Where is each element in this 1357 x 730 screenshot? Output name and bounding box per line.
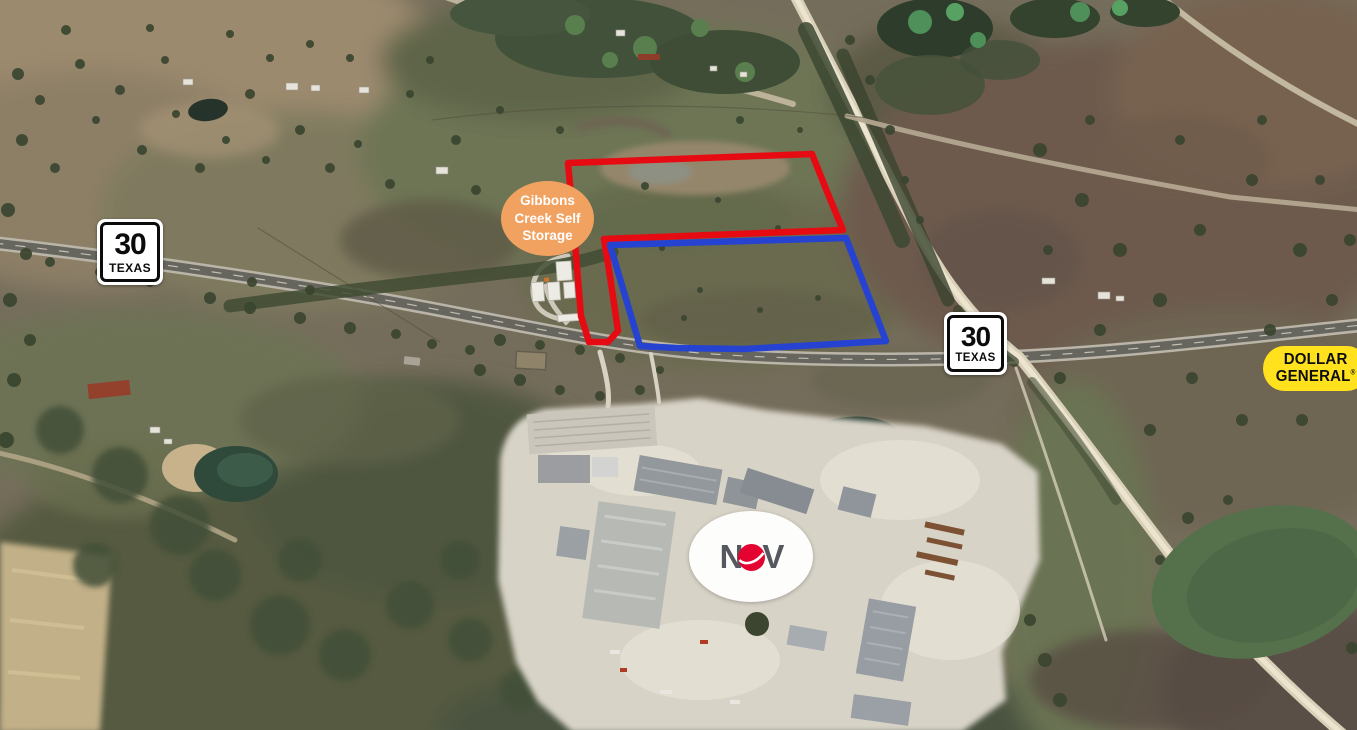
route-number: 30 xyxy=(961,323,990,351)
nov-letter-v: V xyxy=(762,540,782,573)
route-number: 30 xyxy=(114,230,145,260)
aerial-map-canvas: 30 TEXAS 30 TEXAS Gibbons Creek Self Sto… xyxy=(0,0,1357,730)
dollar-general-line: DOLLAR xyxy=(1284,352,1348,369)
nov-globe-icon xyxy=(738,544,765,571)
registered-trademark-icon: ® xyxy=(1351,369,1356,376)
shield-frame: 30 TEXAS xyxy=(100,222,160,282)
dollar-general-line: GENERAL® xyxy=(1276,369,1356,386)
satellite-basemap xyxy=(0,0,1357,730)
storage-marker-line: Gibbons xyxy=(520,192,575,210)
storage-marker-line: Creek Self xyxy=(514,210,580,228)
dollar-general-logo: DOLLAR GENERAL® xyxy=(1263,346,1357,391)
highway-30-shield-right: 30 TEXAS xyxy=(944,312,1007,375)
gibbons-creek-self-storage-marker: Gibbons Creek Self Storage xyxy=(501,181,594,256)
highway-30-shield-left: 30 TEXAS xyxy=(97,219,163,285)
storage-marker-line: Storage xyxy=(522,227,572,245)
route-state: TEXAS xyxy=(109,262,151,274)
shield-frame: 30 TEXAS xyxy=(947,315,1004,372)
route-state: TEXAS xyxy=(955,353,995,365)
nov-logo-badge: N V xyxy=(689,511,813,602)
